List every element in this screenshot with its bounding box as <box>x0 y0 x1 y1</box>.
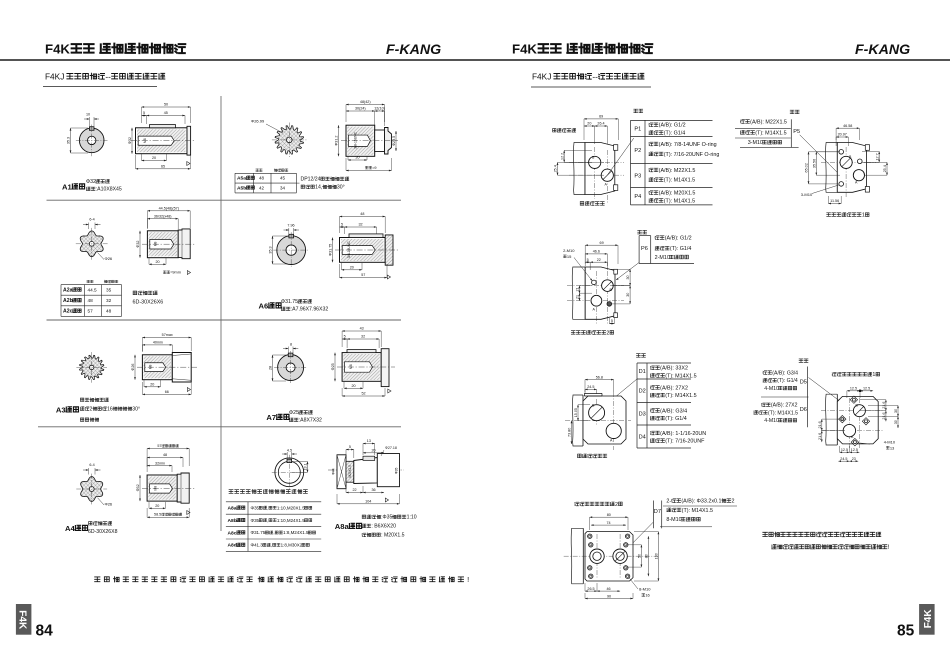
svg-text:8-M10: 8-M10 <box>639 587 651 592</box>
svg-text:44.5: 44.5 <box>88 287 98 292</box>
svg-text:73.80: 73.80 <box>568 428 572 437</box>
svg-text:40min: 40min <box>153 341 163 345</box>
svg-text:D2: D2 <box>639 389 646 395</box>
svg-text:(A/B): M22X1.5: (A/B): M22X1.5 <box>659 168 696 174</box>
svg-text:D1: D1 <box>639 369 646 375</box>
svg-text:(T): M14X1.5: (T): M14X1.5 <box>665 393 696 399</box>
svg-text:45: 45 <box>280 175 285 180</box>
svg-text:30: 30 <box>894 409 898 413</box>
svg-text:Φ25: Φ25 <box>331 363 335 370</box>
svg-text:6-4: 6-4 <box>89 463 94 467</box>
svg-text:A8c: A8c <box>228 530 237 536</box>
svg-text:(A/B): 27X2: (A/B): 27X2 <box>660 385 688 391</box>
svg-text:Φ25: Φ25 <box>289 410 299 416</box>
svg-text:Φ31.75: Φ31.75 <box>281 299 298 305</box>
svg-text:32: 32 <box>106 298 112 303</box>
svg-text:2-M10: 2-M10 <box>563 248 575 253</box>
svg-text:F4K: F4K <box>512 41 537 56</box>
svg-text:P6: P6 <box>641 246 648 252</box>
svg-text:Φ26.99: Φ26.99 <box>251 118 265 123</box>
svg-text:A5a: A5a <box>237 176 246 182</box>
svg-text:25.4: 25.4 <box>554 165 558 172</box>
svg-text:13.1: 13.1 <box>304 463 308 470</box>
svg-text:4-M10: 4-M10 <box>764 418 779 424</box>
svg-text:45: 45 <box>164 111 168 115</box>
svg-text:F-KANG: F-KANG <box>855 42 910 58</box>
svg-text::A7.96X7.96X32: :A7.96X7.96X32 <box>291 307 329 313</box>
svg-text:65: 65 <box>161 164 165 168</box>
svg-text:Φ32: Φ32 <box>128 137 132 144</box>
svg-text:20.97: 20.97 <box>838 133 847 137</box>
svg-text:12.5: 12.5 <box>841 448 848 452</box>
svg-text:74: 74 <box>606 521 610 525</box>
svg-text:Φ26: Φ26 <box>105 501 113 506</box>
svg-text:12.5: 12.5 <box>851 448 858 452</box>
svg-text:(T): M14X1.5: (T): M14X1.5 <box>768 410 798 416</box>
svg-text:Φ35: Φ35 <box>394 468 398 475</box>
svg-text:12.2: 12.2 <box>560 153 564 160</box>
svg-text:2-: 2- <box>666 499 671 505</box>
svg-text:F4KJ: F4KJ <box>532 71 551 81</box>
svg-text:5: 5 <box>344 335 346 339</box>
svg-text:A8b: A8b <box>228 518 237 524</box>
svg-text:Φ41.3: Φ41.3 <box>251 543 264 548</box>
svg-text:M8: M8 <box>143 138 147 143</box>
svg-text:35: 35 <box>106 287 112 292</box>
svg-text:8: 8 <box>290 343 292 347</box>
svg-text:8-M10: 8-M10 <box>666 517 681 523</box>
svg-text:Φ26: Φ26 <box>105 256 113 261</box>
svg-text:50: 50 <box>164 103 168 107</box>
svg-text:15: 15 <box>567 254 572 259</box>
svg-text:3-M10: 3-M10 <box>748 140 763 146</box>
svg-text:P2: P2 <box>634 148 641 154</box>
svg-text:21.6: 21.6 <box>882 402 886 409</box>
svg-text:57max: 57max <box>162 333 173 337</box>
svg-text:2: 2 <box>732 499 735 505</box>
svg-text:1: 1 <box>862 213 865 219</box>
svg-text:30(24): 30(24) <box>355 107 366 111</box>
svg-text:=9mm: =9mm <box>170 271 181 275</box>
svg-text:12.5: 12.5 <box>850 387 857 391</box>
svg-text:12.5: 12.5 <box>863 387 870 391</box>
svg-text:24.5: 24.5 <box>840 457 847 461</box>
svg-text:Φ35: Φ35 <box>251 505 260 510</box>
svg-text:--: -- <box>105 71 111 81</box>
svg-text:(A/B): Φ33.2x0.1: (A/B): Φ33.2x0.1 <box>681 499 721 505</box>
svg-text::Φ35: :Φ35 <box>381 515 392 521</box>
svg-text:35.3: 35.3 <box>67 137 71 144</box>
svg-text:(A/B): M20X1.5: (A/B): M20X1.5 <box>659 191 696 197</box>
svg-text:A5b: A5b <box>237 185 246 191</box>
svg-text:69: 69 <box>600 241 604 245</box>
svg-text:(A/B): G1/2: (A/B): G1/2 <box>659 123 686 129</box>
svg-text:(T): M14X1.5: (T): M14X1.5 <box>755 130 786 136</box>
svg-text:48: 48 <box>259 175 264 180</box>
svg-text:30: 30 <box>626 275 630 279</box>
svg-text:21.6: 21.6 <box>882 412 886 419</box>
svg-text:3/8-16UNC: 3/8-16UNC <box>353 131 357 148</box>
svg-text:30: 30 <box>894 420 898 424</box>
svg-text:(A/B): M22X1.5: (A/B): M22X1.5 <box>750 119 787 125</box>
svg-text:!: ! <box>467 575 469 584</box>
svg-text:D7: D7 <box>654 509 661 515</box>
svg-text:16: 16 <box>645 593 650 598</box>
svg-text:26.5: 26.5 <box>587 587 594 591</box>
svg-text:22: 22 <box>352 488 356 492</box>
svg-text::A10X8X45: :A10X8X45 <box>96 187 122 193</box>
svg-text:35.3: 35.3 <box>269 246 273 253</box>
svg-text:M8: M8 <box>349 364 353 369</box>
svg-text:2-M10: 2-M10 <box>655 255 670 261</box>
svg-text:3-M10: 3-M10 <box>801 192 813 197</box>
svg-text:D5: D5 <box>800 380 807 386</box>
svg-text:,: , <box>267 505 268 510</box>
svg-text:(A/B): G1/2: (A/B): G1/2 <box>665 236 692 242</box>
svg-text:A6: A6 <box>259 301 269 310</box>
svg-text:A4: A4 <box>65 524 75 533</box>
svg-text:(A/B): G3/4: (A/B): G3/4 <box>660 408 687 414</box>
svg-text:26.4: 26.4 <box>597 122 604 126</box>
svg-text:44.5(48)(57): 44.5(48)(57) <box>159 207 179 211</box>
svg-text:28: 28 <box>269 366 273 370</box>
svg-text:15.05: 15.05 <box>574 408 578 417</box>
svg-text:50: 50 <box>637 554 641 558</box>
svg-text:4.5: 4.5 <box>287 449 292 453</box>
svg-text:10: 10 <box>86 113 90 117</box>
svg-text:25.4: 25.4 <box>883 165 887 172</box>
svg-text:1:10,M20X1.5: 1:10,M20X1.5 <box>277 505 305 510</box>
svg-text:1:10: 1:10 <box>407 515 417 521</box>
svg-text:A2a: A2a <box>63 287 73 293</box>
svg-text:84: 84 <box>36 623 54 640</box>
svg-text:16: 16 <box>107 407 113 413</box>
svg-text:: M20X1.5: : M20X1.5 <box>381 533 405 539</box>
svg-text:80: 80 <box>644 554 648 558</box>
svg-text:Φ35: Φ35 <box>251 518 260 523</box>
svg-text:5: 5 <box>587 258 589 262</box>
svg-text:21.6: 21.6 <box>818 433 822 440</box>
svg-text:D6: D6 <box>800 407 807 413</box>
svg-text:(T): G1/4: (T): G1/4 <box>665 416 687 422</box>
svg-text:24.5: 24.5 <box>587 385 594 389</box>
svg-text:48: 48 <box>88 298 94 303</box>
svg-text:A8d: A8d <box>228 543 237 549</box>
svg-text:Φ32: Φ32 <box>86 179 96 185</box>
svg-text:7.96: 7.96 <box>287 224 294 228</box>
svg-text:A1: A1 <box>62 182 72 191</box>
svg-text:32min: 32min <box>155 461 165 465</box>
svg-text:F-KANG: F-KANG <box>386 42 441 58</box>
svg-text:20: 20 <box>355 156 359 160</box>
svg-text:69: 69 <box>599 115 603 119</box>
svg-text:(T): G1/4: (T): G1/4 <box>664 131 686 137</box>
svg-text:M8: M8 <box>148 364 152 369</box>
svg-text:A8a: A8a <box>228 505 237 511</box>
svg-text:P1: P1 <box>634 127 641 133</box>
svg-text:(T): 7/16-20UNF O-ring: (T): 7/16-20UNF O-ring <box>664 152 720 158</box>
svg-text:3/8-16UNC: 3/8-16UNC <box>347 241 351 258</box>
svg-text:(A/B): 27X2: (A/B): 27X2 <box>771 403 798 409</box>
svg-text:1:8,M30X2: 1:8,M30X2 <box>281 543 303 548</box>
svg-text:5: 5 <box>341 223 343 227</box>
svg-text:,: , <box>267 518 268 523</box>
svg-text:DP12/24: DP12/24 <box>301 177 321 183</box>
svg-text:--: -- <box>592 71 598 81</box>
svg-text:104: 104 <box>365 499 371 503</box>
svg-text:11.56: 11.56 <box>830 199 839 203</box>
svg-text:A7: A7 <box>266 413 276 422</box>
svg-text:21: 21 <box>576 295 580 299</box>
svg-text:2: 2 <box>606 330 609 336</box>
svg-text:(T): M14X1.5: (T): M14X1.5 <box>664 178 695 184</box>
svg-text:!: ! <box>888 544 890 551</box>
svg-text:48: 48 <box>360 212 364 216</box>
svg-text:(T): M14X1.5: (T): M14X1.5 <box>682 508 713 514</box>
svg-text:4-M10: 4-M10 <box>884 439 896 444</box>
svg-text:1:10,M24X1.5: 1:10,M24X1.5 <box>277 518 305 523</box>
svg-text:43: 43 <box>360 327 364 331</box>
svg-text:Φ31.2: Φ31.2 <box>335 136 339 146</box>
svg-text:34: 34 <box>280 185 285 190</box>
svg-text:85: 85 <box>897 623 915 640</box>
svg-text:13: 13 <box>890 445 895 450</box>
svg-text:(T): G1/4: (T): G1/4 <box>777 378 798 384</box>
svg-text:35.56: 35.56 <box>812 159 816 168</box>
svg-text:90: 90 <box>607 594 611 598</box>
svg-text:Φ31.75: Φ31.75 <box>329 244 333 256</box>
svg-text:D3: D3 <box>639 412 646 418</box>
svg-text:12.7: 12.7 <box>875 153 879 160</box>
svg-text:A8a: A8a <box>335 522 350 531</box>
svg-text:(A/B): 7/8-14UNF O-ring: (A/B): 7/8-14UNF O-ring <box>659 142 717 148</box>
svg-text:M8: M8 <box>153 486 157 491</box>
svg-text:46.58: 46.58 <box>843 124 852 128</box>
svg-text:,: , <box>271 543 272 548</box>
svg-text:20: 20 <box>350 265 354 269</box>
svg-text:4-M10: 4-M10 <box>764 386 779 392</box>
svg-text:32: 32 <box>361 335 365 339</box>
svg-text:58.5: 58.5 <box>154 513 161 517</box>
svg-text:20: 20 <box>351 384 355 388</box>
svg-text:Φ32: Φ32 <box>136 241 140 248</box>
svg-text:Φ44: Φ44 <box>331 468 335 475</box>
svg-text:6-4: 6-4 <box>89 218 94 222</box>
svg-text:=9: =9 <box>372 166 376 170</box>
svg-text:30°: 30° <box>337 185 345 191</box>
svg-text:36: 36 <box>371 488 375 492</box>
svg-text:57: 57 <box>157 444 161 448</box>
svg-text:130: 130 <box>654 553 658 559</box>
svg-text:P3: P3 <box>634 173 641 179</box>
svg-text:(T): 7/16-20UNF: (T): 7/16-20UNF <box>665 439 705 445</box>
svg-text:A3: A3 <box>56 405 66 414</box>
svg-text:30°: 30° <box>132 407 140 413</box>
svg-text:14,: 14, <box>315 185 322 191</box>
svg-text:6D-30X26X6: 6D-30X26X6 <box>133 299 164 305</box>
svg-text:2: 2 <box>90 407 93 413</box>
svg-text:A2b: A2b <box>63 298 73 304</box>
svg-text:P5: P5 <box>793 129 800 135</box>
svg-text:46.6: 46.6 <box>593 250 600 254</box>
svg-text:5: 5 <box>143 111 145 115</box>
svg-text:20: 20 <box>587 122 591 126</box>
svg-text:M8: M8 <box>153 241 157 246</box>
svg-text:(A/B): 33X2: (A/B): 33X2 <box>660 366 688 372</box>
svg-text:(T): M14X1.5: (T): M14X1.5 <box>665 373 696 379</box>
svg-text:: B6X6X20: : B6X6X20 <box>371 524 396 530</box>
svg-text:65.02: 65.02 <box>805 163 809 172</box>
svg-text:1:8,M24X1.5: 1:8,M24X1.5 <box>283 530 309 535</box>
svg-text:12(10): 12(10) <box>374 107 385 111</box>
svg-text:36/32(x48): 36/32(x48) <box>154 214 172 218</box>
svg-text:(T): M14X1.5: (T): M14X1.5 <box>664 198 695 204</box>
svg-text:F4K: F4K <box>45 41 70 56</box>
svg-text:F4K: F4K <box>923 609 934 629</box>
svg-text:Φ32: Φ32 <box>136 484 140 491</box>
svg-text:23: 23 <box>852 457 856 461</box>
svg-text:56.8: 56.8 <box>596 375 603 379</box>
svg-text:Φ27.18: Φ27.18 <box>385 446 397 450</box>
svg-text:20: 20 <box>371 449 375 453</box>
svg-text:5: 5 <box>349 445 351 449</box>
svg-text:Φ28.5: Φ28.5 <box>392 136 396 146</box>
svg-text:48: 48 <box>163 453 167 457</box>
svg-text:(A/B): 1-1/16-20UN: (A/B): 1-1/16-20UN <box>660 431 706 437</box>
svg-text:6D-30X26X8: 6D-30X26X8 <box>88 529 118 535</box>
svg-text:48(42): 48(42) <box>360 100 371 104</box>
svg-text:30: 30 <box>626 293 630 297</box>
svg-text:20: 20 <box>155 260 159 264</box>
svg-text:66: 66 <box>165 390 169 394</box>
svg-text:Φ31.75: Φ31.75 <box>251 530 266 535</box>
svg-text:21.6: 21.6 <box>818 421 822 428</box>
svg-text:22: 22 <box>597 258 601 262</box>
svg-text:13: 13 <box>367 439 371 443</box>
svg-text:M20X1.5: M20X1.5 <box>348 465 352 478</box>
svg-text:A2c: A2c <box>63 309 73 315</box>
svg-text:52: 52 <box>362 392 366 396</box>
svg-text:48: 48 <box>106 309 112 314</box>
svg-text:21: 21 <box>576 287 580 291</box>
svg-text:42: 42 <box>259 185 264 190</box>
svg-text:,: , <box>273 530 274 535</box>
svg-text:F4K: F4K <box>17 610 28 630</box>
svg-text:46: 46 <box>607 587 611 591</box>
svg-text::A8X7X32: :A8X7X32 <box>299 418 322 424</box>
svg-text:F4KJ: F4KJ <box>45 71 64 81</box>
svg-text:57: 57 <box>88 309 94 314</box>
svg-text:(T): G1/4: (T): G1/4 <box>670 246 692 252</box>
svg-text:1: 1 <box>872 372 875 378</box>
svg-text:2: 2 <box>615 502 618 508</box>
svg-text:(A/B): G3/4: (A/B): G3/4 <box>772 370 798 376</box>
svg-text:Φ26: Φ26 <box>131 364 135 371</box>
svg-text:80: 80 <box>607 513 611 517</box>
svg-text:32: 32 <box>358 223 362 227</box>
svg-text:57: 57 <box>361 273 365 277</box>
svg-text:20: 20 <box>152 156 156 160</box>
svg-text:5: 5 <box>611 319 613 323</box>
svg-text:20: 20 <box>150 382 154 386</box>
svg-text:P4: P4 <box>634 194 641 200</box>
svg-text:D4: D4 <box>639 435 646 441</box>
svg-text:20: 20 <box>155 504 159 508</box>
